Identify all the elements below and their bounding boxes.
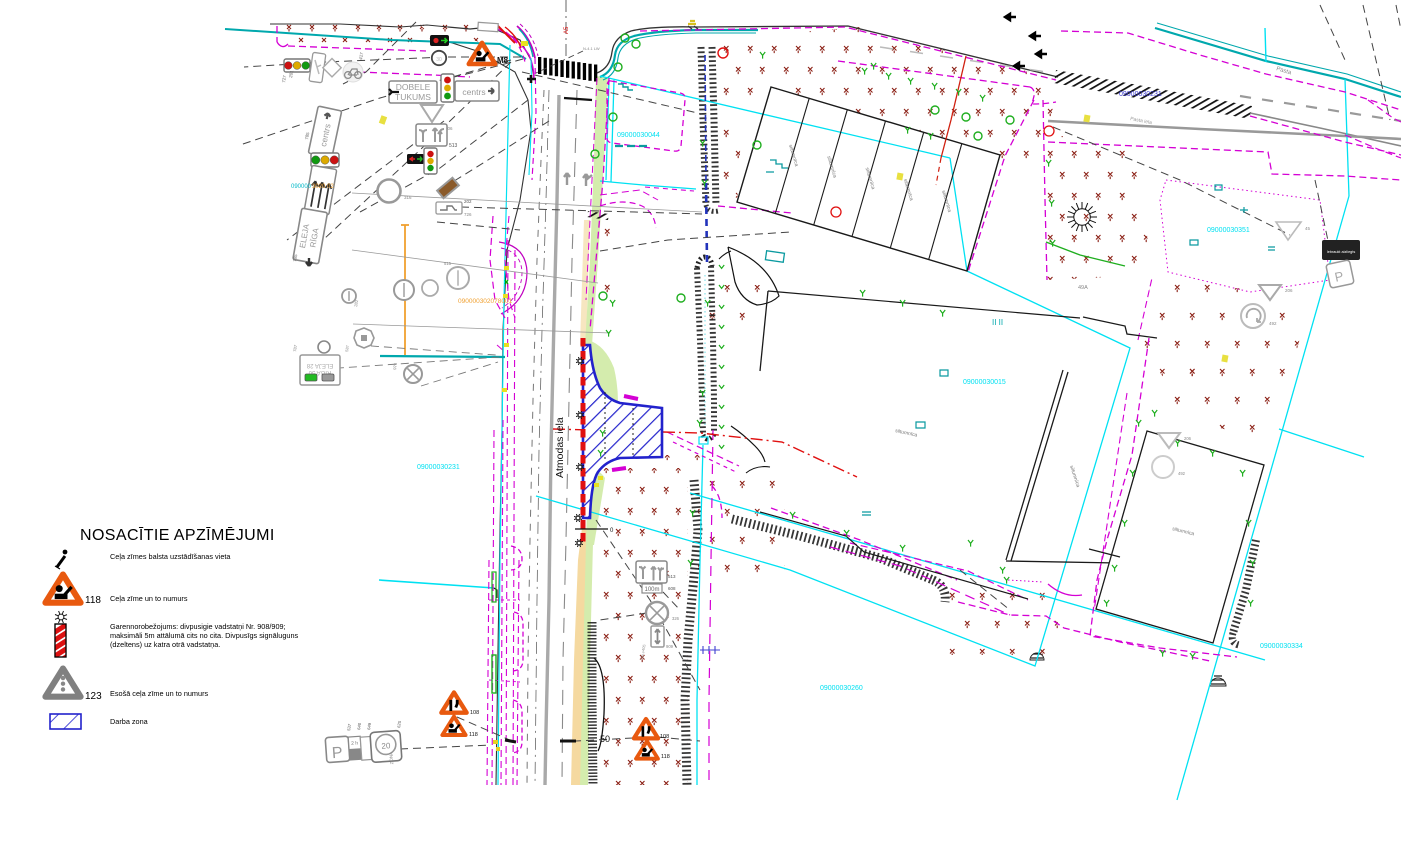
svg-text:118: 118 bbox=[85, 595, 101, 606]
svg-text:02: 02 bbox=[327, 184, 334, 190]
svg-text:(dzeltens) uz katra otrā vadst: (dzeltens) uz katra otrā vadstatņa. bbox=[110, 640, 220, 649]
svg-text:Ceļa zīme un to numurs: Ceļa zīme un to numurs bbox=[110, 594, 188, 603]
svg-text:II II: II II bbox=[992, 318, 1003, 327]
svg-text:513: 513 bbox=[668, 574, 676, 579]
svg-text:09000030260: 09000030260 bbox=[820, 685, 863, 692]
svg-text:100m: 100m bbox=[644, 587, 659, 593]
svg-text:N-4.1 LW: N-4.1 LW bbox=[583, 46, 600, 51]
svg-text:50: 50 bbox=[600, 734, 610, 744]
svg-text:090000: 090000 bbox=[291, 184, 312, 190]
svg-text:P: P bbox=[331, 745, 343, 763]
svg-text:608: 608 bbox=[668, 586, 676, 591]
svg-text:M8: M8 bbox=[497, 56, 509, 65]
svg-text:Garennorobežojums: divpusigie: Garennorobežojums: divpusigie vadstatņi … bbox=[110, 622, 286, 631]
svg-text:492: 492 bbox=[1178, 471, 1186, 476]
svg-text:09000030351: 09000030351 bbox=[1207, 227, 1250, 234]
svg-text:09000030044: 09000030044 bbox=[617, 132, 660, 139]
svg-text:Atmodas iela: Atmodas iela bbox=[554, 417, 566, 478]
svg-text:492: 492 bbox=[1269, 321, 1277, 326]
svg-text:326: 326 bbox=[672, 616, 680, 621]
svg-text:118: 118 bbox=[469, 732, 478, 738]
svg-text:206: 206 bbox=[1184, 436, 1192, 441]
svg-text:09000030015: 09000030015 bbox=[963, 379, 1006, 386]
svg-text:ZONA: ZONA bbox=[388, 752, 394, 765]
svg-text:Darba zona: Darba zona bbox=[110, 717, 149, 726]
svg-text:316: 316 bbox=[404, 195, 412, 200]
svg-text:909: 909 bbox=[666, 644, 674, 649]
svg-text:Iebraukt aizliegts: Iebraukt aizliegts bbox=[1327, 250, 1356, 254]
svg-text:centrs: centrs bbox=[462, 87, 485, 97]
svg-text:118: 118 bbox=[661, 754, 670, 760]
svg-text:3020: 3020 bbox=[312, 184, 326, 190]
svg-text:Esošā ceļa zīme un to numurs: Esošā ceļa zīme un to numurs bbox=[110, 689, 208, 698]
svg-text:090000302078001: 090000302078001 bbox=[458, 298, 513, 305]
svg-text:123: 123 bbox=[85, 691, 102, 702]
svg-text:206: 206 bbox=[1285, 288, 1293, 293]
svg-text:49A: 49A bbox=[1078, 285, 1088, 291]
svg-text:30: 30 bbox=[436, 57, 442, 63]
svg-text:09000030231: 09000030231 bbox=[417, 464, 460, 471]
svg-text:108: 108 bbox=[470, 710, 479, 716]
svg-text:513: 513 bbox=[449, 143, 458, 149]
svg-text:Ceļa zīmes balsta uzstādīšanas: Ceļa zīmes balsta uzstādīšanas vieta bbox=[110, 552, 231, 561]
svg-text:DOBELE: DOBELE bbox=[396, 82, 431, 92]
svg-text:NOSACĪTIE APZĪMĒJUMI: NOSACĪTIE APZĪMĒJUMI bbox=[80, 526, 275, 544]
svg-text:2 h: 2 h bbox=[351, 740, 359, 746]
svg-text:TUKUMS: TUKUMS bbox=[395, 92, 431, 102]
svg-text:A5: A5 bbox=[564, 26, 570, 34]
svg-text:202: 202 bbox=[464, 199, 472, 204]
svg-text:maksimāli 5m attālumā cits no: maksimāli 5m attālumā cits no cita. Divp… bbox=[110, 631, 299, 640]
svg-text:ELEJA 28: ELEJA 28 bbox=[306, 362, 333, 368]
svg-text:09000030334: 09000030334 bbox=[1260, 643, 1303, 650]
svg-text:726: 726 bbox=[464, 212, 472, 217]
svg-text:108: 108 bbox=[660, 734, 669, 740]
svg-text:20: 20 bbox=[381, 741, 391, 751]
svg-text:515: 515 bbox=[444, 261, 452, 266]
svg-text:09000030231: 09000030231 bbox=[1119, 91, 1162, 98]
svg-text:45: 45 bbox=[1305, 226, 1311, 231]
